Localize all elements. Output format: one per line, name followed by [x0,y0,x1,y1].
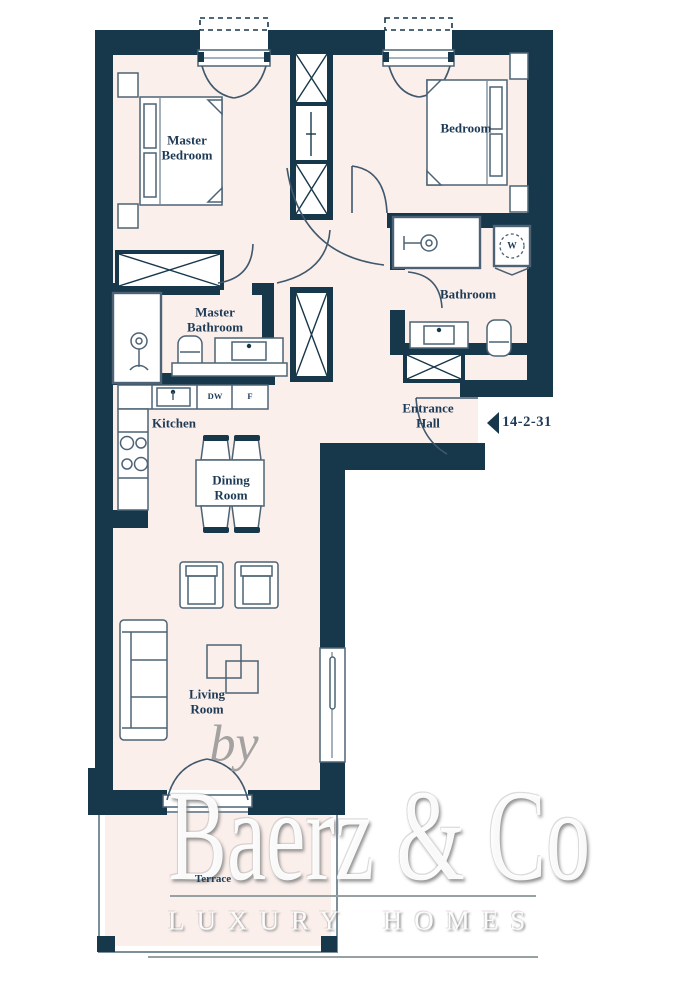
entrance-doorway-floor [460,397,478,443]
living-room-window [320,648,345,762]
floorplan-drawing [0,0,697,1000]
floorplan-page: by Baerz & Co LUXURY HOMES Master Bedroo… [0,0,697,1000]
hall-wardrobe-column [290,48,333,220]
hall-closet [290,287,333,382]
master-bedroom-wardrobe [115,250,224,290]
entrance-arrow-icon [487,412,499,434]
entrance-hall-closet [403,351,465,383]
terrace [97,812,337,952]
